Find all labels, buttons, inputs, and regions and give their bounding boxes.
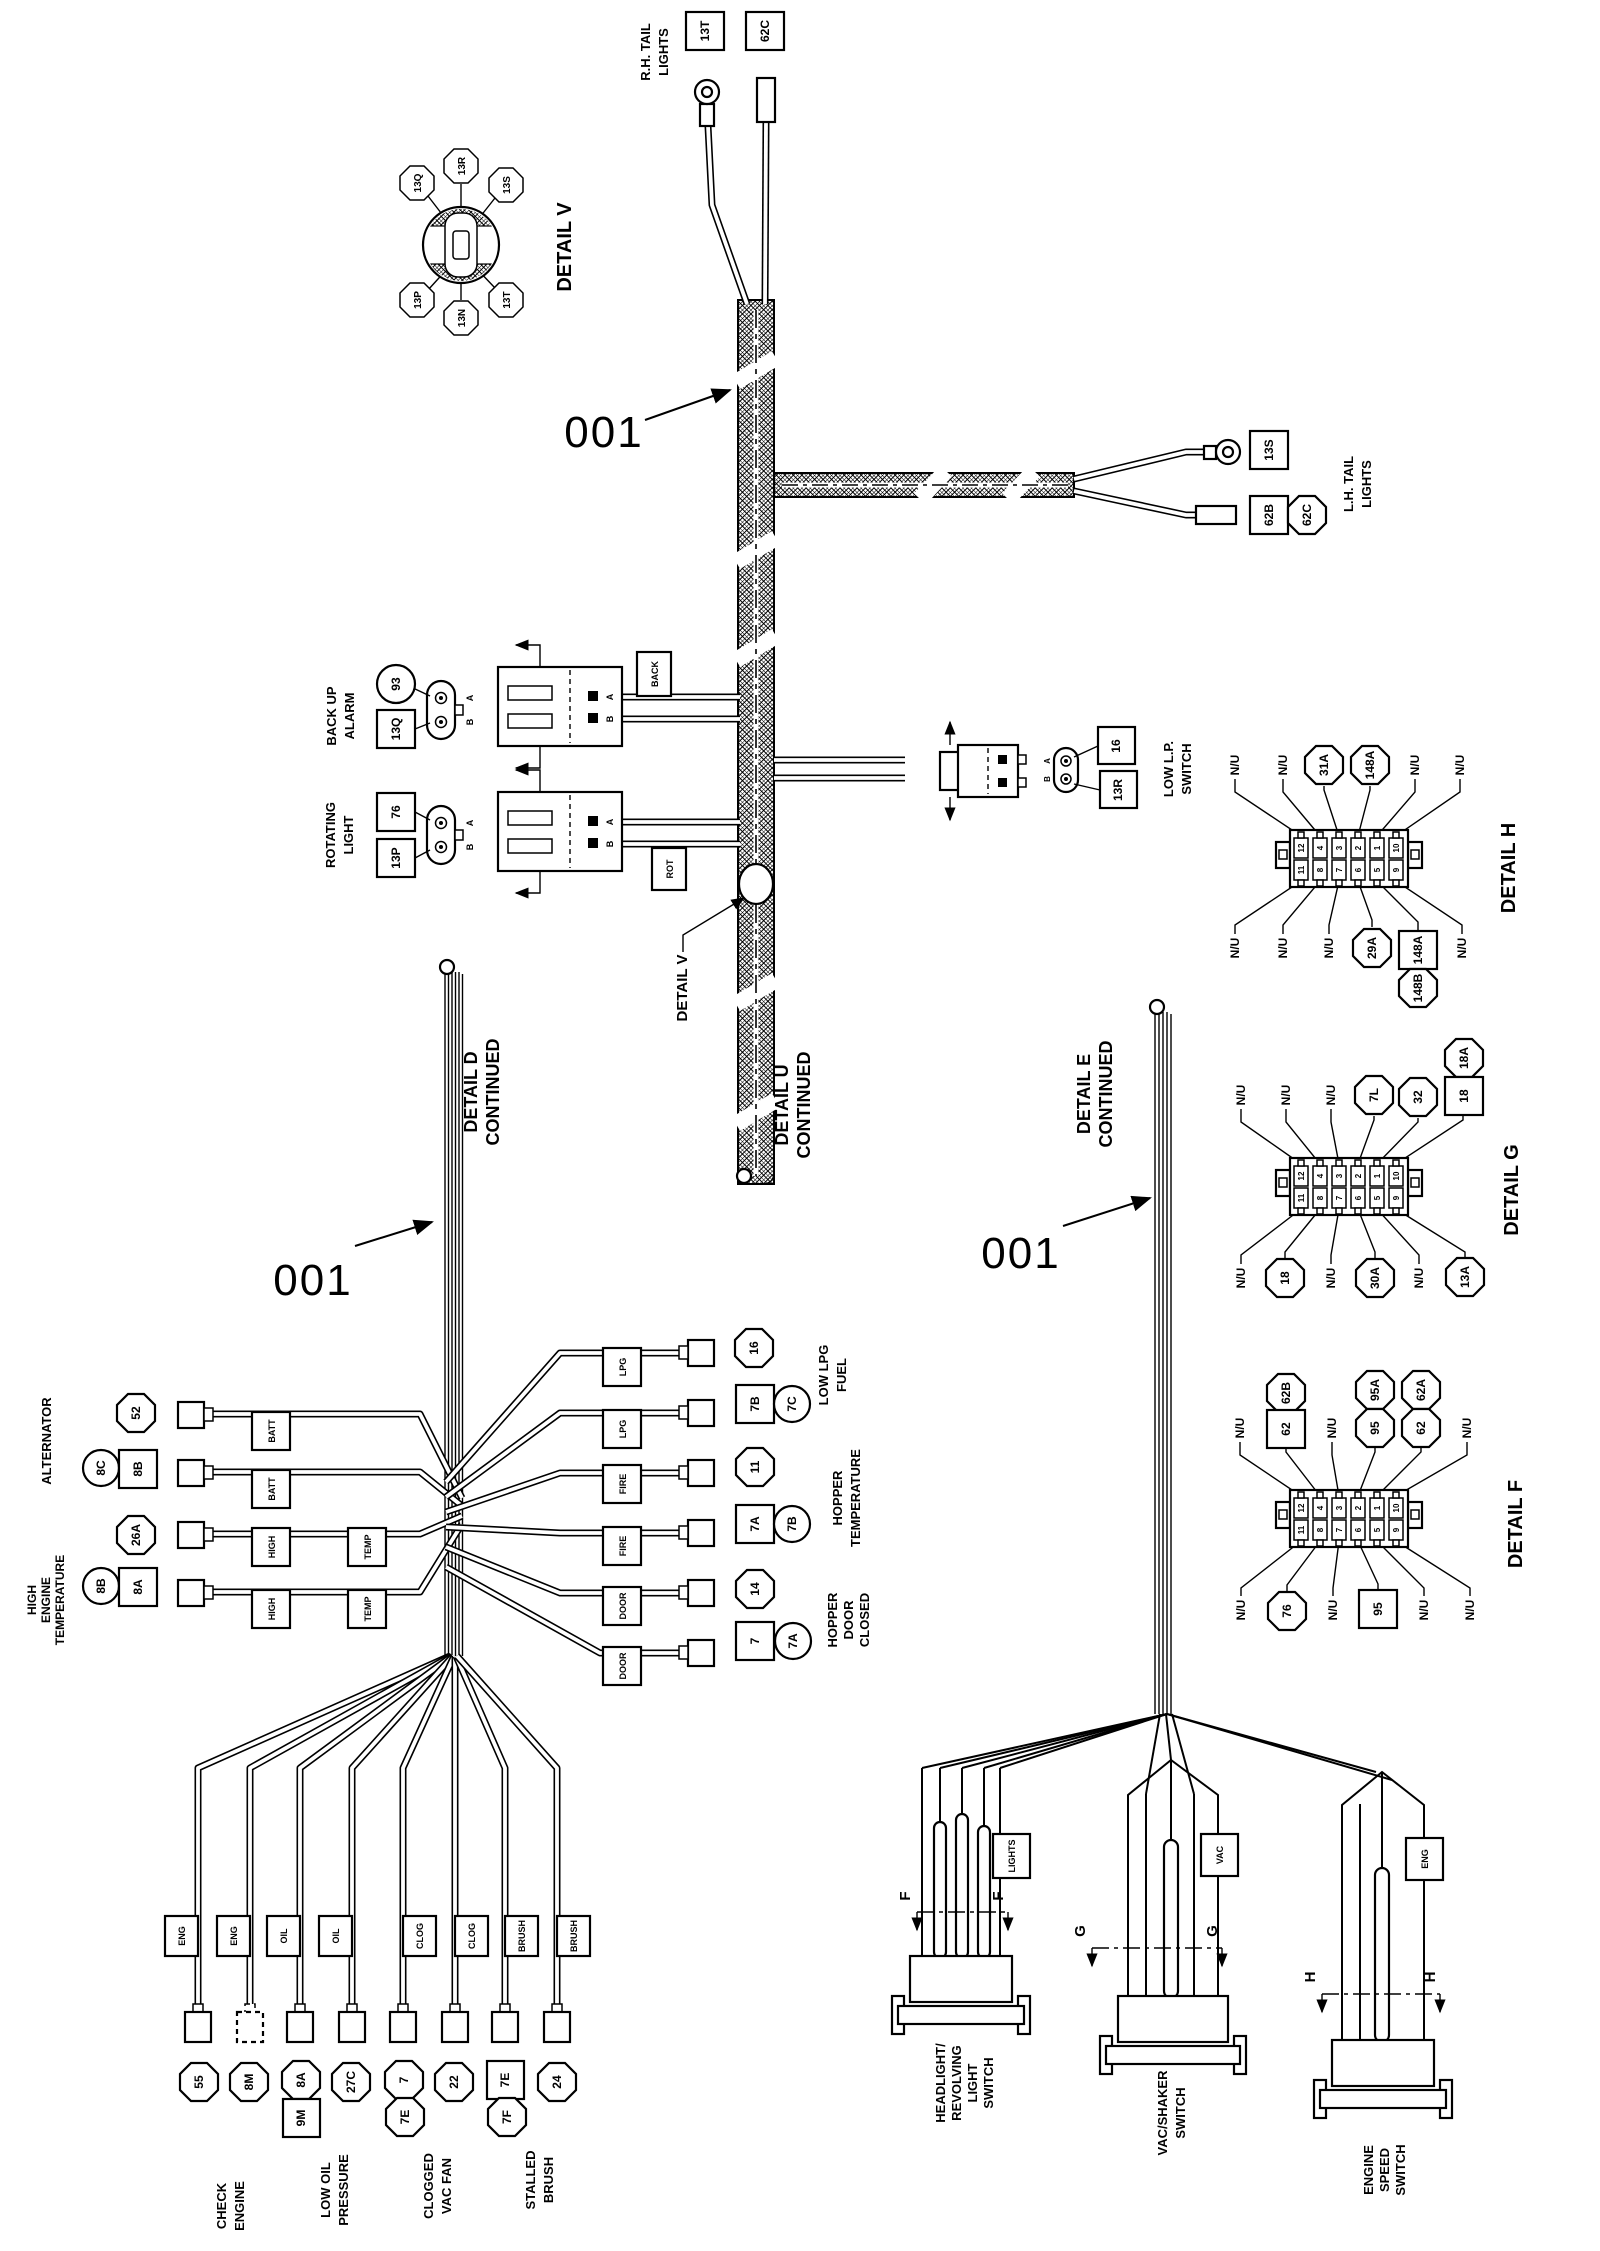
oval-pin-a: A <box>465 819 475 826</box>
rotating-plug <box>498 792 622 871</box>
oval-pin-b: B <box>465 718 475 725</box>
wire-core <box>212 1414 462 1498</box>
pin-num: 5 <box>1373 1195 1382 1200</box>
section-g-left: G <box>1072 1925 1089 1937</box>
wire-tag-eng-1-label: ENG <box>177 1926 187 1946</box>
wire-id-7a-circ-label: 7A <box>786 1633 800 1649</box>
low-oil-caption-2: PRESSURE <box>336 2154 351 2226</box>
wire-id-8b-box-label: 8B <box>131 1461 145 1477</box>
vac-caption-2: SWITCH <box>1173 2087 1188 2138</box>
wire-id-95-oct-label: 95 <box>1368 1421 1382 1435</box>
nu-label: N/U <box>1234 1600 1248 1621</box>
low-lp-caption-2: SWITCH <box>1179 743 1194 794</box>
pin-num: 9 <box>1392 867 1401 872</box>
wire-tag-lpg-1-label: LPG <box>618 1358 628 1377</box>
detail-g-block: 12 4 3 2 1 10 11 8 7 6 5 9 N/U N/U N/U 7… <box>1234 1039 1523 1297</box>
wire-id-7b-circ-label: 7B <box>785 1516 799 1532</box>
detail-u-caption: DETAIL U CONTINUED <box>772 1052 814 1159</box>
wire-id-31a-label: 31A <box>1317 754 1331 776</box>
plug-pin-b: B <box>605 715 615 722</box>
lh-tail-lights: 13S 62B 62C L.H. TAIL LIGHTS <box>774 431 1374 534</box>
wire-id-13s-label: 13S <box>1262 439 1276 460</box>
pin-num: 10 <box>1392 1171 1401 1180</box>
nu-label: N/U <box>1417 1600 1431 1621</box>
pin-num: 4 <box>1316 1505 1325 1510</box>
wire-id-13r-label: 13R <box>1111 779 1125 801</box>
headlight-caption-3: LIGHT <box>965 2063 980 2102</box>
wire-id-7-label: 7 <box>397 2076 411 2083</box>
wire-id-76-label: 76 <box>389 805 403 819</box>
wire-id-62a-label: 62A <box>1414 1379 1428 1401</box>
pin-num: 1 <box>1373 845 1382 850</box>
switch-connector <box>1118 1996 1228 2042</box>
blade-terminal-icon <box>757 78 775 122</box>
low-lp-connector-oval <box>1054 748 1078 792</box>
nu-label: N/U <box>1324 1085 1338 1106</box>
backup-caption-1: BACK UP <box>324 686 339 746</box>
wire-id-16-oct-label: 16 <box>747 1341 761 1355</box>
wire-tag-batt-2-label: BATT <box>267 1477 277 1501</box>
wire-id-7f-label: 7F <box>500 2110 514 2124</box>
wire-tag-batt-1-label: BATT <box>267 1419 277 1443</box>
plug-pin-b: B <box>605 840 615 847</box>
wire-id-95-box-label: 95 <box>1371 1602 1385 1616</box>
terminal-icon <box>185 2004 570 2042</box>
right-bundle: DETAIL E CONTINUED <box>1074 1000 1171 1714</box>
inset-pin-13t: 13T <box>502 291 513 308</box>
pin-num: 7 <box>1335 867 1344 872</box>
wire-id-7c-circ-label: 7C <box>785 1396 799 1412</box>
detail-v-callout-label: DETAIL V <box>674 955 691 1022</box>
wire-id-11-oct-label: 11 <box>748 1460 762 1473</box>
pin-num: 12 <box>1297 1503 1306 1512</box>
low-oil-caption-1: LOW OIL <box>318 2162 333 2218</box>
detail-h-caption: DETAIL H <box>1498 823 1520 913</box>
wire-tag-temp-2-label: TEMP <box>363 1596 373 1621</box>
wire-tag-clog-2-label: CLOG <box>467 1923 477 1949</box>
nu-label: N/U <box>1463 1600 1477 1621</box>
wire-tag-brush-2-label: BRUSH <box>569 1920 579 1952</box>
rh-tail-caption-2: LIGHTS <box>656 28 671 76</box>
wire-id-16-label: 16 <box>1109 739 1123 753</box>
pin-num: 5 <box>1373 867 1382 872</box>
switches-group: LIGHTS F F HEADLIGHT/ REVOLVING LIGHT SW… <box>892 1714 1452 2196</box>
harness-end-cap <box>737 1169 751 1183</box>
wire-id-7l-label: 7L <box>1367 1088 1381 1102</box>
pin-num: 9 <box>1392 1195 1401 1200</box>
rh-tail-lights: 13T 62C R.H. TAIL LIGHTS <box>638 12 784 304</box>
wire-tag-brush-1-label: BRUSH <box>517 1920 527 1952</box>
hopper-temp-caption-1: HOPPER <box>830 1470 845 1526</box>
nu-label: N/U <box>1276 755 1290 776</box>
inset-pin-13r: 13R <box>457 156 468 175</box>
wire-id-93-label: 93 <box>389 677 403 691</box>
alternator-caption: ALTERNATOR <box>39 1397 54 1485</box>
wire-id-13p-label: 13P <box>389 847 403 868</box>
headlight-caption-2: REVOLVING <box>949 2045 964 2121</box>
low-lp-branch: A B 16 13R LOW L.P. SWITCH <box>774 722 1194 820</box>
pin-num: 6 <box>1354 867 1363 872</box>
pin-num: 10 <box>1392 1503 1401 1512</box>
wire-core <box>446 1567 680 1653</box>
callout-001-top-label: 001 <box>564 408 643 457</box>
wire-id-32-label: 32 <box>1411 1090 1425 1104</box>
engine-caption-3: SWITCH <box>1393 2144 1408 2195</box>
wire-tag-door-1-label: DOOR <box>618 1592 628 1620</box>
detail-h-block: 12 4 3 2 1 10 11 8 7 6 5 9 N/U N/U 31A 1… <box>1228 746 1520 1007</box>
plug-pin-a: A <box>605 818 615 825</box>
rotating-connector-oval <box>427 806 455 864</box>
nu-label: N/U <box>1408 755 1422 776</box>
wire-tag-temp-1-label: TEMP <box>363 1534 373 1559</box>
high-temp-caption-1: HIGH <box>25 1585 39 1615</box>
oval-pin-a: A <box>1043 758 1052 764</box>
engine-caption-1: ENGINE <box>1361 2145 1376 2195</box>
engine-caption-2: SPEED <box>1377 2148 1392 2192</box>
wire-id-30a-label: 30A <box>1368 1267 1382 1289</box>
pin-num: 11 <box>1297 1525 1306 1534</box>
pin-num: 3 <box>1335 1505 1344 1510</box>
bundle-end-cap <box>1150 1000 1164 1014</box>
pin-num: 7 <box>1335 1527 1344 1532</box>
pin-num: 4 <box>1316 1173 1325 1178</box>
terminal-icon <box>178 1402 213 1606</box>
wire-tag-lpg-2-label: LPG <box>618 1420 628 1439</box>
wire-tag-high-2-label: HIGH <box>267 1598 277 1621</box>
wire-id-62c-label: 62C <box>758 20 772 42</box>
wire-id-8a-label: 8A <box>294 2072 308 2088</box>
wire-id-148a-top-label: 148A <box>1363 750 1377 779</box>
pin-num: 8 <box>1316 1195 1325 1200</box>
backup-plug <box>498 667 622 746</box>
nu-label: N/U <box>1460 1418 1474 1439</box>
plug-pin-a: A <box>605 693 615 700</box>
wire-id-13t-label: 13T <box>698 20 712 41</box>
detail-e-line2: CONTINUED <box>1096 1041 1116 1148</box>
wire-id-14-oct-label: 14 <box>748 1582 762 1596</box>
rh-tail-caption-1: R.H. TAIL <box>638 23 653 81</box>
wire-id-18a-label: 18A <box>1457 1047 1471 1069</box>
detail-d-line1: DETAIL D <box>461 1051 481 1132</box>
wiring-diagram: 13T 62C R.H. TAIL LIGHTS 13Q 13R 13S 13P… <box>0 0 1600 2251</box>
nu-label: N/U <box>1453 755 1467 776</box>
callout-001-left-label: 001 <box>273 1256 352 1305</box>
wire-id-62b-label: 62B <box>1279 1382 1293 1404</box>
bundle-end-cap <box>440 960 454 974</box>
wire-id-29a-label: 29A <box>1365 937 1379 959</box>
wire-tag-vac-label: VAC <box>1215 1845 1225 1864</box>
wire-id-7e-oct-label: 7E <box>398 2110 412 2125</box>
wire-tag-fire-1-label: FIRE <box>618 1474 628 1495</box>
pin-num: 2 <box>1354 1505 1363 1510</box>
wire-id-62b-label: 62B <box>1262 504 1276 526</box>
ring-terminal-tail <box>700 104 714 126</box>
switch-connector <box>910 1956 1012 2002</box>
nu-label: N/U <box>1324 1268 1338 1289</box>
rotating-light-branch: A B ROT A B 76 13P ROTATING LIGHT <box>323 770 740 893</box>
wire-id-7-box-label: 7 <box>748 1637 762 1644</box>
wire-tag-rot-label: ROT <box>665 859 675 879</box>
lh-tail-caption-2: LIGHTS <box>1359 460 1374 508</box>
low-lp-caption-1: LOW L.P. <box>1161 741 1176 797</box>
detail-d-line2: CONTINUED <box>483 1039 503 1146</box>
wire-id-55-label: 55 <box>192 2075 206 2089</box>
pin-num: 12 <box>1297 1171 1306 1180</box>
pin-num: 2 <box>1354 845 1363 850</box>
nu-label: N/U <box>1233 1418 1247 1439</box>
wire-tag-clog-1-label: CLOG <box>415 1923 425 1949</box>
wire-tag-fire-2-label: FIRE <box>618 1536 628 1557</box>
low-lpg-fuel-caption-1: LOW LPG <box>816 1345 831 1406</box>
callout-001-right-label: 001 <box>981 1229 1060 1278</box>
wire-id-18-box-label: 18 <box>1457 1089 1471 1103</box>
pin-num: 1 <box>1373 1505 1382 1510</box>
wire-id-9m-box-label: 9M <box>294 2110 308 2127</box>
nu-label: N/U <box>1228 938 1242 959</box>
blade-terminal-icon <box>1196 506 1236 524</box>
detail-e-line1: DETAIL E <box>1074 1054 1094 1134</box>
detail-g-caption: DETAIL G <box>1501 1144 1523 1235</box>
detail-f-block: 12 4 3 2 1 10 11 8 7 6 5 9 N/U 62B 62 N/… <box>1233 1371 1527 1630</box>
wire-id-95a-label: 95A <box>1368 1379 1382 1401</box>
wire-id-13a-label: 13A <box>1458 1266 1472 1288</box>
wire-id-26a-label: 26A <box>129 1524 143 1546</box>
wire-id-62c-oct-label: 62C <box>1300 504 1314 526</box>
section-h-right: H <box>1422 1972 1439 1983</box>
wiring-diagram-page: 13T 62C R.H. TAIL LIGHTS 13Q 13R 13S 13P… <box>0 0 1600 2251</box>
wire-id-52-label: 52 <box>129 1406 143 1420</box>
wire-id-7a-box-label: 7A <box>748 1516 762 1532</box>
wire-id-8a-box-label: 8A <box>131 1579 145 1595</box>
nu-label: N/U <box>1234 1268 1248 1289</box>
wire-tag-door-2-label: DOOR <box>618 1652 628 1680</box>
pin-num: 8 <box>1316 867 1325 872</box>
detail-v-inset-caption: DETAIL V <box>554 202 576 292</box>
section-g-right: G <box>1204 1925 1221 1937</box>
bottom-left-group: ENG ENG OIL OIL CLOG CLOG BRUSH BRUSH 55… <box>165 1656 590 2231</box>
section-f-left: F <box>897 1891 914 1900</box>
wire-tag-high-1-label: HIGH <box>267 1536 277 1559</box>
pin-num: 12 <box>1297 843 1306 852</box>
inset-pin-13n: 13N <box>457 309 468 327</box>
callout-001-right: 001 <box>981 1198 1150 1278</box>
wire-core <box>212 1472 462 1506</box>
nu-label: N/U <box>1279 1085 1293 1106</box>
wire-id-7b-box-label: 7B <box>748 1396 762 1412</box>
main-harness <box>736 300 776 1184</box>
alternator-high-temp-group: BATT BATT HIGH TEMP HIGH TEMP 52 8C 8B 2… <box>25 1394 462 1645</box>
pin-num: 6 <box>1354 1195 1363 1200</box>
backup-alarm-branch: A B BACK A B 93 13Q BACK UP ALARM <box>324 645 740 768</box>
callout-001-top: 001 <box>564 390 730 457</box>
nu-label: N/U <box>1234 1085 1248 1106</box>
hopper-door-caption-1: HOPPER <box>825 1592 840 1648</box>
oval-pin-b: B <box>1043 776 1052 782</box>
nu-label: N/U <box>1276 938 1290 959</box>
wire-core <box>446 1353 680 1482</box>
headlight-switch: LIGHTS F F HEADLIGHT/ REVOLVING LIGHT SW… <box>892 1768 1030 2123</box>
stalled-caption-1: STALLED <box>523 2151 538 2210</box>
rotating-caption-2: LIGHT <box>341 815 356 854</box>
pin-num: 3 <box>1335 1173 1344 1178</box>
hopper-temp-caption-2: TEMPERATURE <box>848 1449 863 1547</box>
wire-id-148b-label: 148B <box>1411 973 1425 1002</box>
inset-pin-13q: 13Q <box>413 173 424 192</box>
wire-tag-oil-1-label: OIL <box>279 1928 289 1944</box>
detail-f-caption: DETAIL F <box>1505 1480 1527 1568</box>
nu-label: N/U <box>1322 938 1336 959</box>
section-h-left: H <box>1302 1972 1319 1983</box>
wire-id-8b-circ-label: 8B <box>94 1578 108 1594</box>
detail-u-line1: DETAIL U <box>772 1064 792 1145</box>
hopper-door-caption-3: CLOSED <box>857 1593 872 1647</box>
wire-core <box>765 122 766 304</box>
wire-tag-eng-2-label: ENG <box>229 1926 239 1946</box>
check-engine-caption-1: CHECK <box>214 2182 229 2229</box>
switch-connector <box>1332 2040 1434 2086</box>
headlight-caption-1: HEADLIGHT/ <box>933 2043 948 2123</box>
check-engine-caption-2: ENGINE <box>232 2181 247 2231</box>
wire-id-22-label: 22 <box>447 2075 461 2089</box>
wire-id-62-oct-label: 62 <box>1414 1421 1428 1435</box>
oval-pin-a: A <box>465 694 475 701</box>
vac-shaker-switch: VAC G G VAC/SHAKER SWITCH <box>1072 1760 1246 2156</box>
stalled-caption-2: BRUSH <box>541 2157 556 2203</box>
nu-label: N/U <box>1455 938 1469 959</box>
wire-id-27c-label: 27C <box>344 2071 358 2093</box>
pin-num: 4 <box>1316 845 1325 850</box>
pin-num: 8 <box>1316 1527 1325 1532</box>
pin-num: 11 <box>1297 1193 1306 1202</box>
detail-u-line2: CONTINUED <box>794 1052 814 1159</box>
nu-label: N/U <box>1326 1600 1340 1621</box>
engine-speed-switch: ENG H H ENGINE SPEED SWITCH <box>1302 1772 1452 2196</box>
vac-caption-1: VAC/SHAKER <box>1155 2070 1170 2156</box>
detail-v-callout: DETAIL V <box>674 898 744 1021</box>
clogged-caption-2: VAC FAN <box>439 2158 454 2214</box>
inset-pin-13p: 13P <box>413 291 424 309</box>
wire-core <box>446 1473 680 1512</box>
high-temp-caption-2: ENGINE <box>39 1577 53 1623</box>
low-lpg-fuel-caption-2: FUEL <box>834 1358 849 1392</box>
pin-num: 5 <box>1373 1527 1382 1532</box>
high-temp-caption-3: TEMPERATURE <box>53 1555 67 1645</box>
wire-id-148a-box-label: 148A <box>1411 935 1425 964</box>
wire-id-8c-label: 8C <box>94 1460 108 1476</box>
wire-id-18-oct-label: 18 <box>1278 1271 1292 1285</box>
wire-id-62-box-label: 62 <box>1279 1422 1293 1436</box>
detail-v-grommet <box>739 864 773 904</box>
hopper-door-caption-2: DOOR <box>841 1600 856 1640</box>
pin-num: 9 <box>1392 1527 1401 1532</box>
wire-id-13q-label: 13Q <box>389 718 403 741</box>
pin-num: 1 <box>1373 1173 1382 1178</box>
wire-id-76-oct-label: 76 <box>1280 1604 1294 1618</box>
detail-v-inset: 13Q 13R 13S 13P 13N 13T DETAIL V <box>400 149 576 335</box>
headlight-caption-4: SWITCH <box>981 2057 996 2108</box>
hopper-lpg-group: LPG LPG FIRE FIRE DOOR DOOR 16 7B 7C 11 … <box>446 1329 872 1685</box>
wire-tag-eng-label: ENG <box>1420 1849 1430 1869</box>
wire-id-24-label: 24 <box>550 2075 564 2089</box>
rotating-caption-1: ROTATING <box>323 802 338 868</box>
wire-core <box>446 1413 680 1497</box>
wire-tag-lights-label: LIGHTS <box>1007 1840 1017 1873</box>
nu-label: N/U <box>1412 1268 1426 1289</box>
nu-label: N/U <box>1325 1418 1339 1439</box>
wire-id-8m-label: 8M <box>242 2074 256 2091</box>
inset-pin-13s: 13S <box>502 176 513 194</box>
pin-num: 2 <box>1354 1173 1363 1178</box>
section-f-right: F <box>990 1891 1007 1900</box>
wire-id-7e-box-label: 7E <box>498 2073 512 2088</box>
nu-label: N/U <box>1228 755 1242 776</box>
pin-num: 3 <box>1335 845 1344 850</box>
pin-num: 7 <box>1335 1195 1344 1200</box>
oval-pin-b: B <box>465 843 475 850</box>
pin-num: 6 <box>1354 1527 1363 1532</box>
clogged-caption-1: CLOGGED <box>421 2153 436 2219</box>
backup-caption-2: ALARM <box>342 693 357 740</box>
pin-num: 11 <box>1297 865 1306 874</box>
lh-tail-caption-1: L.H. TAIL <box>1341 456 1356 512</box>
wire-tag-oil-2-label: OIL <box>331 1928 341 1944</box>
callout-001-left: 001 <box>273 1222 432 1305</box>
wire-tag-back-label: BACK <box>650 661 660 687</box>
pin-num: 10 <box>1392 843 1401 852</box>
terminal-icon <box>679 1340 714 1666</box>
backup-connector-oval <box>427 681 455 739</box>
